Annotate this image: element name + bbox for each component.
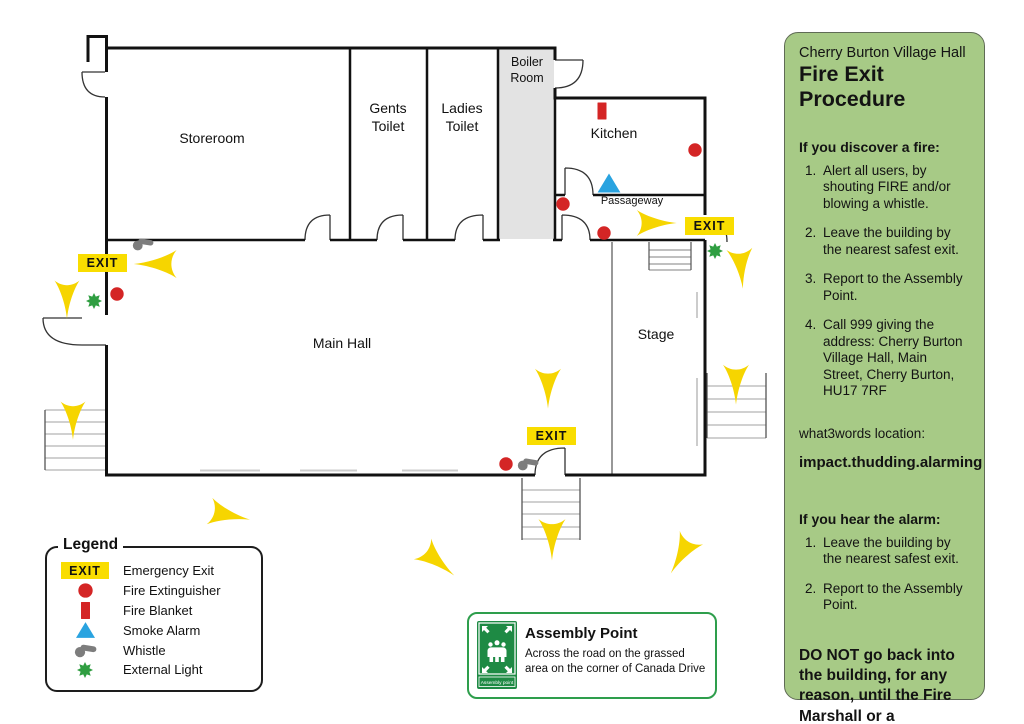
legend-item-emergency-exit: EXIT Emergency Exit	[47, 561, 261, 581]
route-arrow-icon	[539, 513, 566, 563]
legend-item-fire-blanket: Fire Blanket	[47, 601, 261, 621]
smoke-alarm-icon	[47, 622, 123, 638]
fire-blanket-icon	[598, 103, 607, 120]
exit-sign-east: EXIT	[685, 217, 734, 235]
page-title: Fire Exit Procedure	[799, 62, 970, 112]
route-arrow-icon	[630, 210, 680, 236]
legend-item-external-light: External Light	[47, 660, 261, 680]
assembly-sign-label: Assembly point	[481, 680, 514, 686]
route-arrow-icon	[133, 250, 181, 278]
fire-extinguisher-icon	[688, 143, 702, 157]
list-item: Leave the building by the nearest safest…	[820, 225, 970, 258]
assembly-point-sign-icon: Assembly point	[477, 621, 517, 689]
list-item: Call 999 giving the address: Cherry Burt…	[820, 317, 970, 399]
fire-extinguisher-icon	[499, 457, 513, 471]
list-item: Alert all users, by shouting FIRE and/or…	[820, 163, 970, 212]
whistle-icon	[517, 457, 539, 471]
fire-blanket-icon	[47, 602, 123, 619]
list-item: Leave the building by the nearest safest…	[820, 535, 970, 568]
legend-item-whistle: Whistle	[47, 640, 261, 660]
room-label-stage: Stage	[638, 325, 675, 343]
fire-extinguisher-icon	[556, 197, 570, 211]
route-arrow-icon	[61, 395, 86, 444]
route-arrow-icon	[726, 242, 756, 292]
room-label-gents-toilet: Gents Toilet	[369, 99, 406, 135]
legend-title: Legend	[58, 536, 123, 554]
what3words-label: what3words location:	[799, 426, 970, 441]
legend-item-smoke-alarm: Smoke Alarm	[47, 620, 261, 640]
assembly-point-title: Assembly Point	[525, 625, 638, 642]
external-light-icon	[707, 243, 723, 259]
fire-exit-procedure-poster: Storeroom Gents Toilet Ladies Toilet Boi…	[0, 0, 1024, 724]
exit-sign-icon: EXIT	[61, 562, 109, 579]
room-label-passageway: Passageway	[601, 194, 663, 208]
venue-name: Cherry Burton Village Hall	[799, 45, 970, 61]
external-light-icon	[86, 293, 102, 309]
assembly-point-description: Across the road on the grassed area on t…	[525, 647, 707, 677]
sidebar: Cherry Burton Village Hall Fire Exit Pro…	[784, 32, 985, 700]
room-label-main-hall: Main Hall	[313, 334, 371, 352]
route-arrow-icon	[55, 275, 80, 322]
route-arrow-icon	[535, 362, 561, 412]
room-label-boiler-room: Boiler Room	[510, 54, 543, 87]
room-label-kitchen: Kitchen	[591, 124, 638, 142]
do-not-warning: DO NOT go back into the building, for an…	[799, 646, 970, 724]
route-arrow-icon	[723, 359, 749, 407]
stairs-stage	[649, 242, 691, 270]
exit-sign-west: EXIT	[78, 254, 127, 272]
what3words-value: impact.thudding.alarming	[799, 454, 970, 471]
discover-fire-steps: Alert all users, by shouting FIRE and/or…	[799, 163, 970, 400]
list-item: Report to the Assembly Point.	[820, 581, 970, 614]
assembly-point-card: Assembly point Assembly Point Across the…	[467, 612, 717, 699]
whistle-icon	[132, 237, 154, 251]
discover-fire-heading: If you discover a fire:	[799, 139, 970, 155]
fire-extinguisher-icon	[110, 287, 124, 301]
exit-sign-south: EXIT	[527, 427, 576, 445]
fire-extinguisher-icon	[47, 583, 123, 598]
smoke-alarm-icon	[598, 174, 621, 193]
legend: Legend EXIT Emergency Exit Fire Extingui…	[45, 546, 263, 692]
fire-extinguisher-icon	[597, 226, 611, 240]
external-light-icon	[47, 662, 123, 678]
legend-item-fire-extinguisher: Fire Extinguisher	[47, 581, 261, 601]
room-label-ladies-toilet: Ladies Toilet	[441, 99, 482, 135]
hear-alarm-heading: If you hear the alarm:	[799, 511, 970, 527]
room-label-storeroom: Storeroom	[179, 129, 244, 147]
whistle-icon	[47, 643, 123, 658]
hear-alarm-steps: Leave the building by the nearest safest…	[799, 535, 970, 614]
list-item: Report to the Assembly Point.	[820, 271, 970, 304]
